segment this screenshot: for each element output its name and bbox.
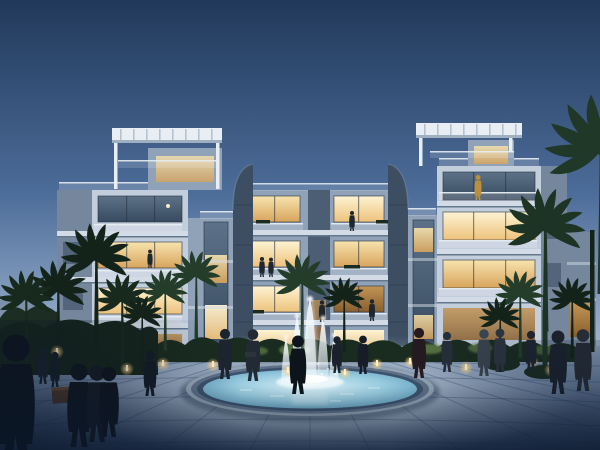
scene-canvas bbox=[0, 0, 600, 450]
dusk-apartment-fountain-scene bbox=[0, 0, 600, 450]
balcony-railing bbox=[94, 224, 182, 226]
balcony-railing bbox=[331, 313, 387, 315]
center-building bbox=[242, 183, 398, 352]
ceiling-lamp bbox=[166, 204, 170, 208]
lit-window bbox=[414, 228, 433, 252]
roof-railing bbox=[242, 183, 398, 185]
right-fin bbox=[388, 164, 408, 352]
window bbox=[98, 196, 182, 222]
balcony-railing bbox=[94, 270, 182, 272]
balcony-railing bbox=[247, 223, 303, 225]
balcony-railing bbox=[439, 192, 537, 194]
lit-window bbox=[156, 156, 214, 182]
bollard-light bbox=[339, 367, 351, 379]
